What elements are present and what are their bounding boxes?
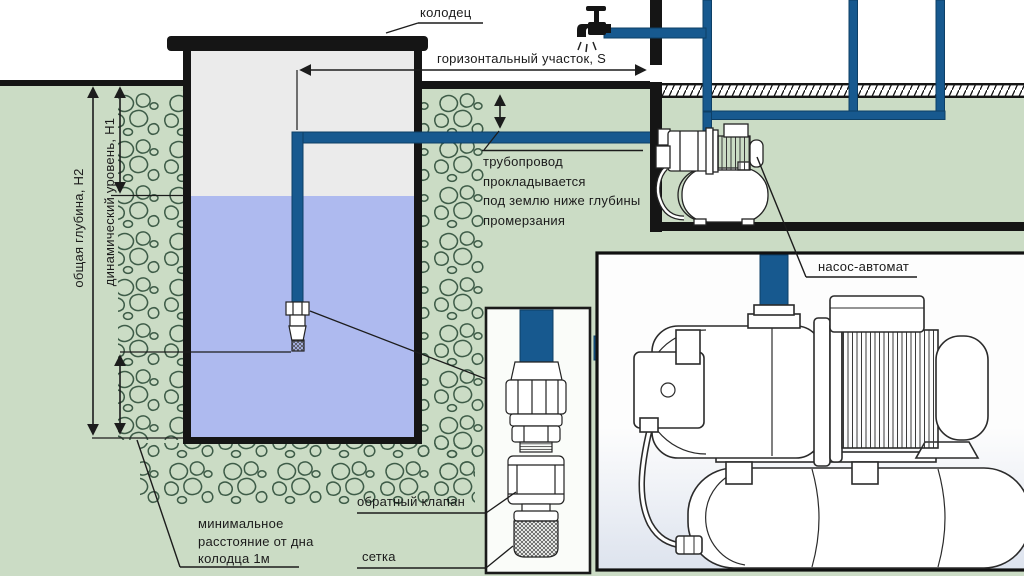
schematic-drawing (0, 0, 1024, 576)
pump-station-detail-box (597, 253, 1024, 570)
ground-line-right (419, 81, 652, 89)
label-pump-station: насос-автомат (818, 258, 909, 277)
label-strainer: сетка (362, 548, 396, 567)
label-horizontal-section: горизонтальный участок, S (437, 50, 606, 69)
filter-detail-box (486, 308, 590, 573)
compression-fitting-icon (506, 362, 566, 452)
label-pipeline-note: трубопровод прокладывается под землю ниж… (483, 152, 641, 230)
faucet-icon (577, 6, 611, 52)
check-valve-icon (508, 456, 564, 504)
label-dynamic-level: динамический уровень, H1 (101, 118, 120, 286)
mesh-strainer-icon (514, 504, 558, 557)
ground-line-left (0, 80, 183, 86)
diagram-canvas: колодец горизонтальный участок, S трубоп… (0, 0, 1024, 576)
large-pump-drawing (634, 296, 1024, 568)
label-check-valve: обратный клапан (357, 493, 465, 512)
detail-pipe (520, 310, 553, 364)
label-well: колодец (420, 4, 471, 23)
well-lid (167, 36, 428, 51)
label-min-distance: минимальное расстояние от дна колодца 1м (198, 515, 314, 568)
label-total-depth: общая глубина, H2 (70, 168, 89, 287)
